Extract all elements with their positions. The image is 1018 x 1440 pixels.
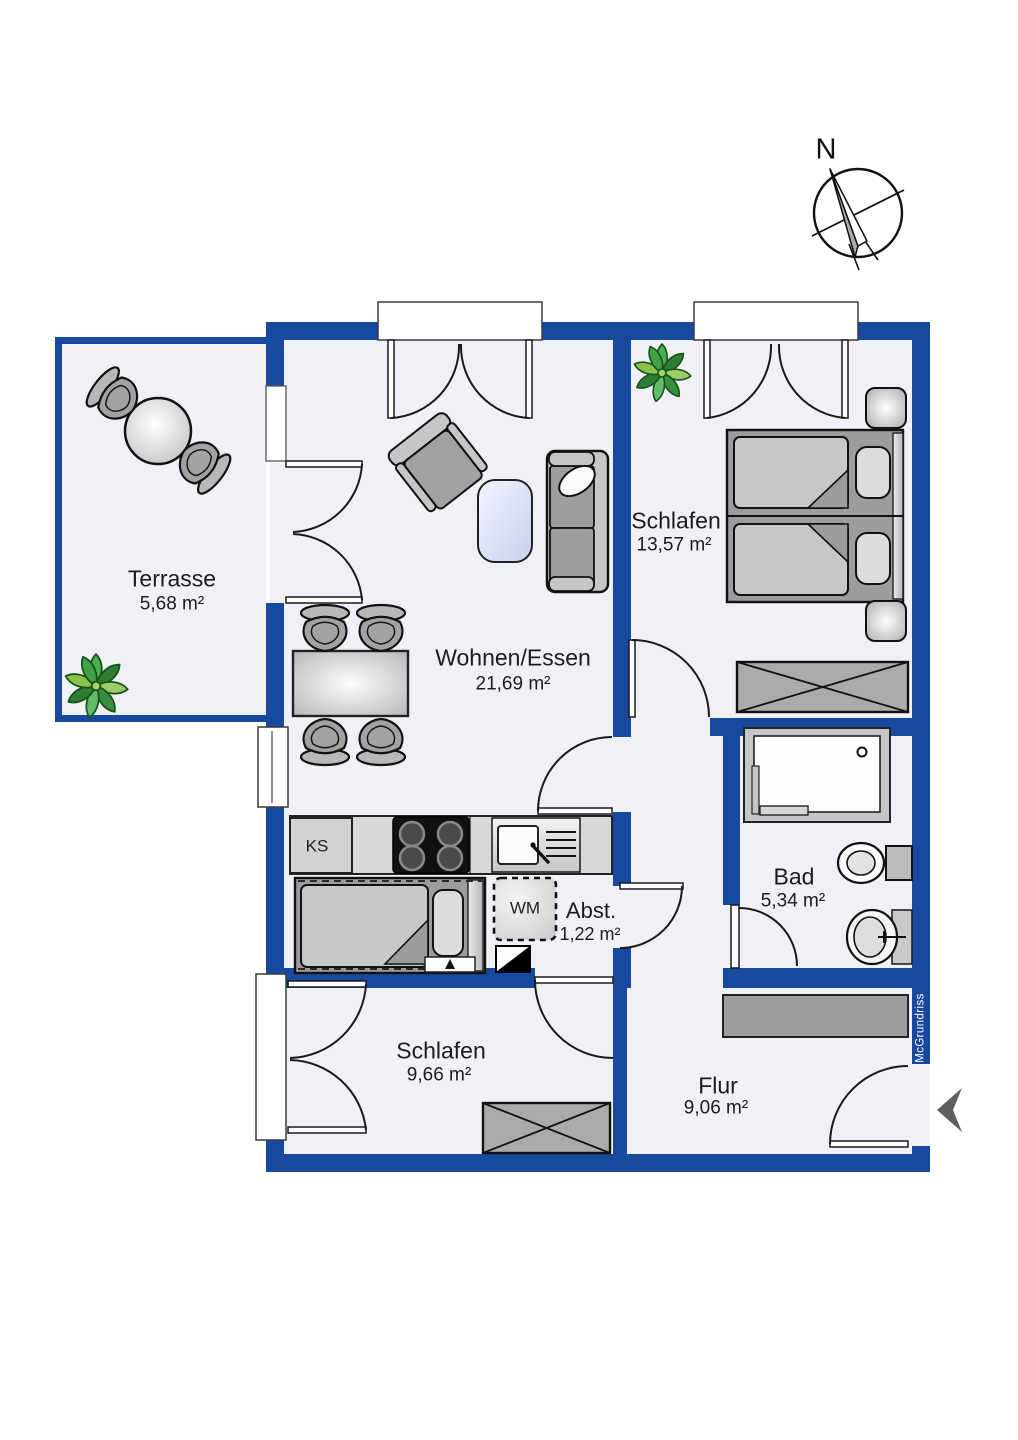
- bath-sink: [847, 910, 912, 964]
- window-living: [258, 727, 288, 807]
- french-door-frame-living: [378, 302, 542, 340]
- french-door-frame-bedroom2: [256, 974, 286, 1140]
- kitchen-sink: [492, 818, 580, 872]
- entrance-arrow: [937, 1088, 962, 1132]
- fridge-label: KS: [306, 838, 329, 855]
- pillow: [856, 533, 890, 584]
- compass-rose: [812, 169, 904, 270]
- room-area-schlafen-1: 13,57 m²: [637, 536, 712, 555]
- window-terrace: [266, 386, 286, 461]
- room-area-flur: 9,06 m²: [684, 1099, 748, 1118]
- double-bed: [727, 430, 903, 602]
- room-label-wohnen-essen: Wohnen/Essen: [435, 647, 591, 670]
- room-label-terrasse: Terrasse: [128, 568, 216, 591]
- washer-label: WM: [510, 900, 540, 917]
- floor-plan-page: Terrasse 5,68 m² Wohnen/Essen 21,69 m² S…: [0, 0, 1018, 1440]
- coffee-table: [478, 480, 532, 562]
- compass-north-label: N: [816, 136, 837, 165]
- watermark-text: McGrundriss: [915, 993, 927, 1063]
- stove: [393, 817, 469, 873]
- room-label-schlafen-1: Schlafen: [631, 510, 721, 533]
- single-bed: [295, 878, 485, 973]
- shower-step: [760, 806, 808, 815]
- room-label-schlafen-2: Schlafen: [396, 1040, 486, 1063]
- dining-chair: [301, 719, 349, 765]
- room-area-schlafen-2: 9,66 m²: [407, 1066, 471, 1085]
- storage-strip: [295, 878, 556, 973]
- room-area-bad: 5,34 m²: [761, 892, 825, 911]
- dining-chair: [357, 719, 405, 765]
- dining-chair: [357, 605, 405, 651]
- room-area-wohnen-essen: 21,69 m²: [476, 675, 551, 694]
- toilet: [838, 843, 912, 883]
- installation-shaft: [496, 946, 530, 972]
- pillow: [856, 447, 890, 498]
- room-area-terrasse: 5,68 m²: [140, 595, 204, 614]
- floor-plan-drawing: [0, 0, 1018, 1440]
- wardrobe: [737, 662, 908, 712]
- hall-wardrobe: [723, 995, 908, 1037]
- french-door-frame-bedroom1: [694, 302, 858, 340]
- kitchen: [290, 816, 612, 874]
- nightstand: [866, 601, 906, 641]
- room-label-bad: Bad: [774, 866, 815, 889]
- dining-chair: [301, 605, 349, 651]
- pillow: [433, 890, 463, 956]
- room-area-abstellraum: 1,22 m²: [559, 925, 620, 943]
- shower: [744, 728, 890, 822]
- wardrobe: [483, 1103, 610, 1153]
- room-label-flur: Flur: [698, 1075, 738, 1098]
- sofa: [547, 451, 608, 592]
- dining-table: [293, 651, 408, 716]
- nightstand: [866, 388, 906, 428]
- room-label-abstellraum: Abst.: [566, 900, 616, 922]
